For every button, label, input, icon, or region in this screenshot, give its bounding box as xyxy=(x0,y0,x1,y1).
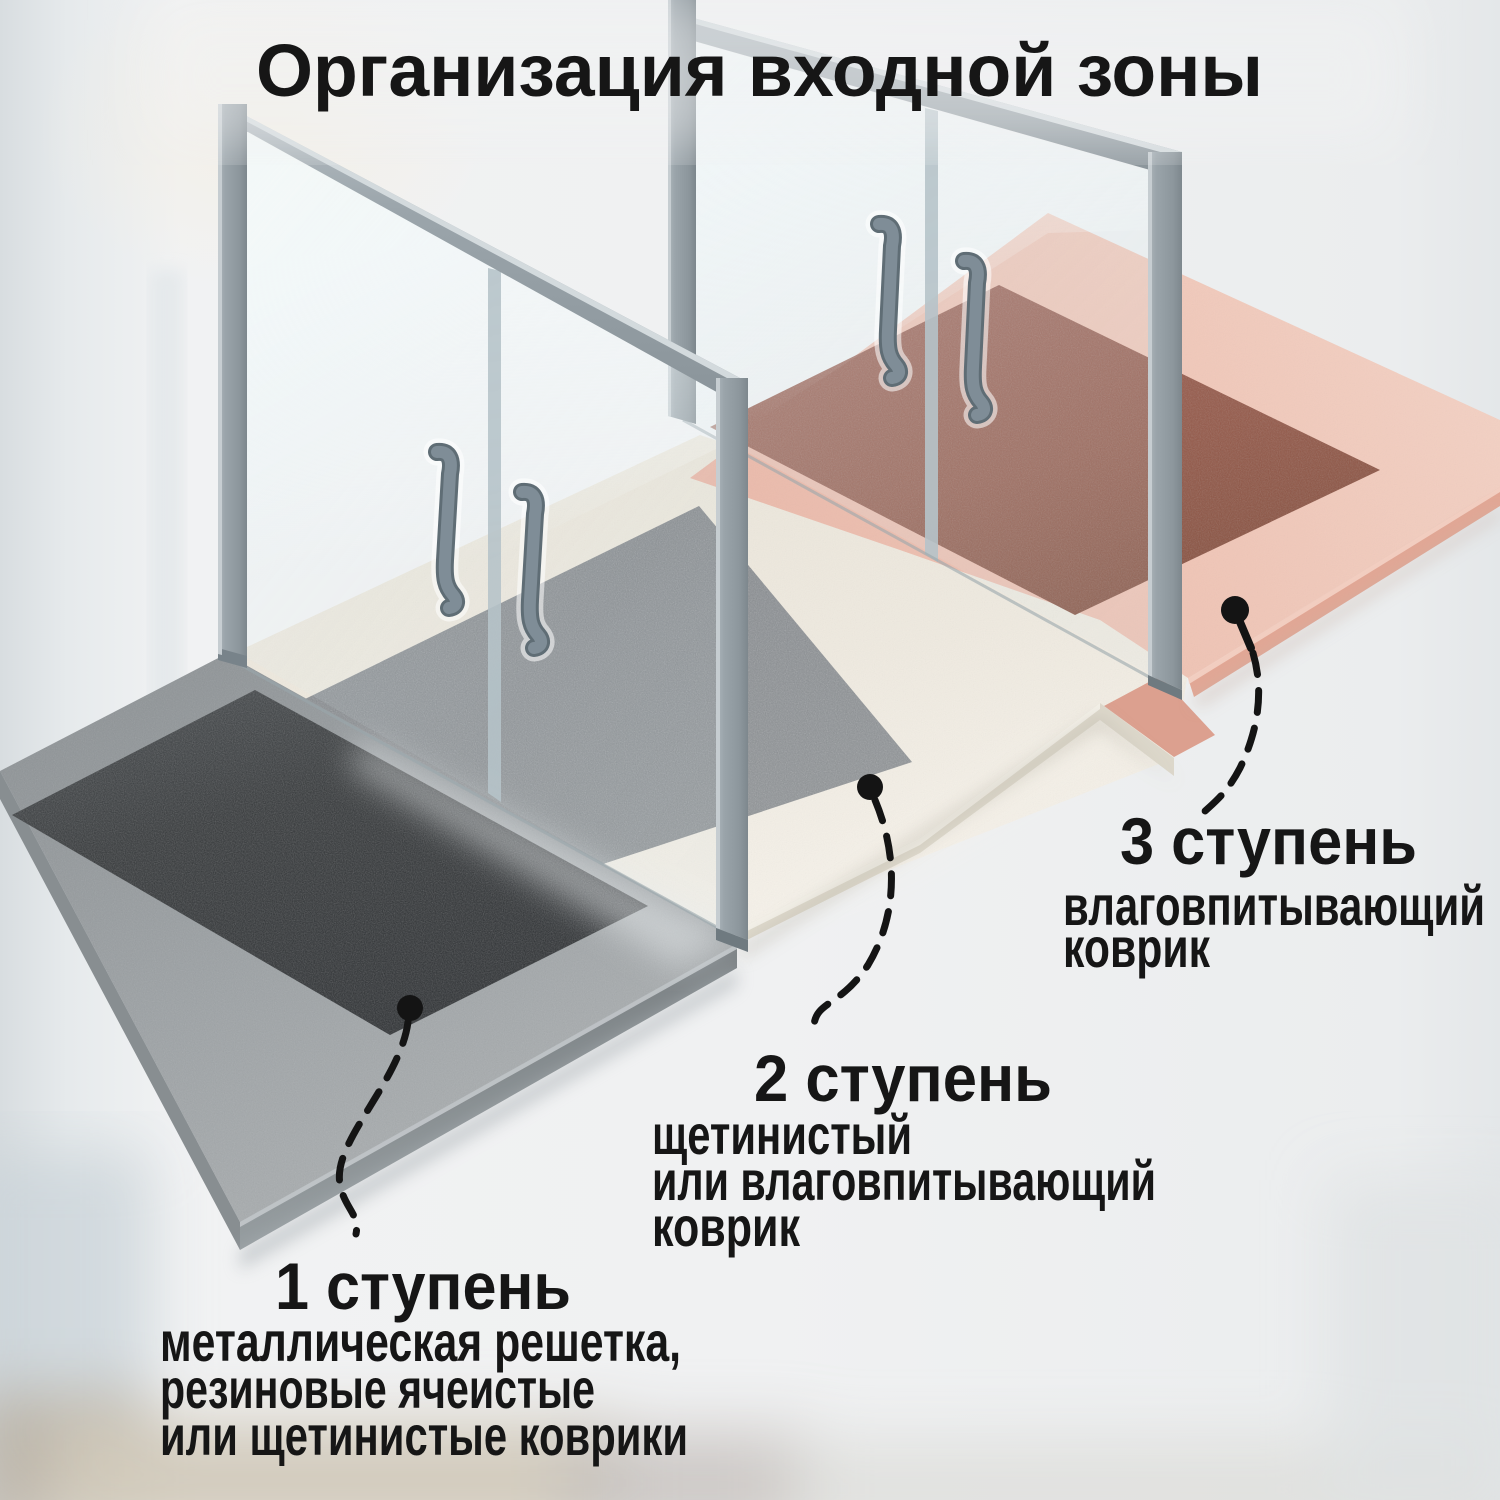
svg-text:или щетинистые коврики: или щетинистые коврики xyxy=(160,1404,688,1467)
svg-text:3 ступень: 3 ступень xyxy=(1120,804,1417,878)
svg-text:Организация входной зоны: Организация входной зоны xyxy=(256,29,1263,112)
svg-text:коврик: коврик xyxy=(1063,916,1211,979)
svg-text:коврик: коврик xyxy=(652,1195,801,1258)
